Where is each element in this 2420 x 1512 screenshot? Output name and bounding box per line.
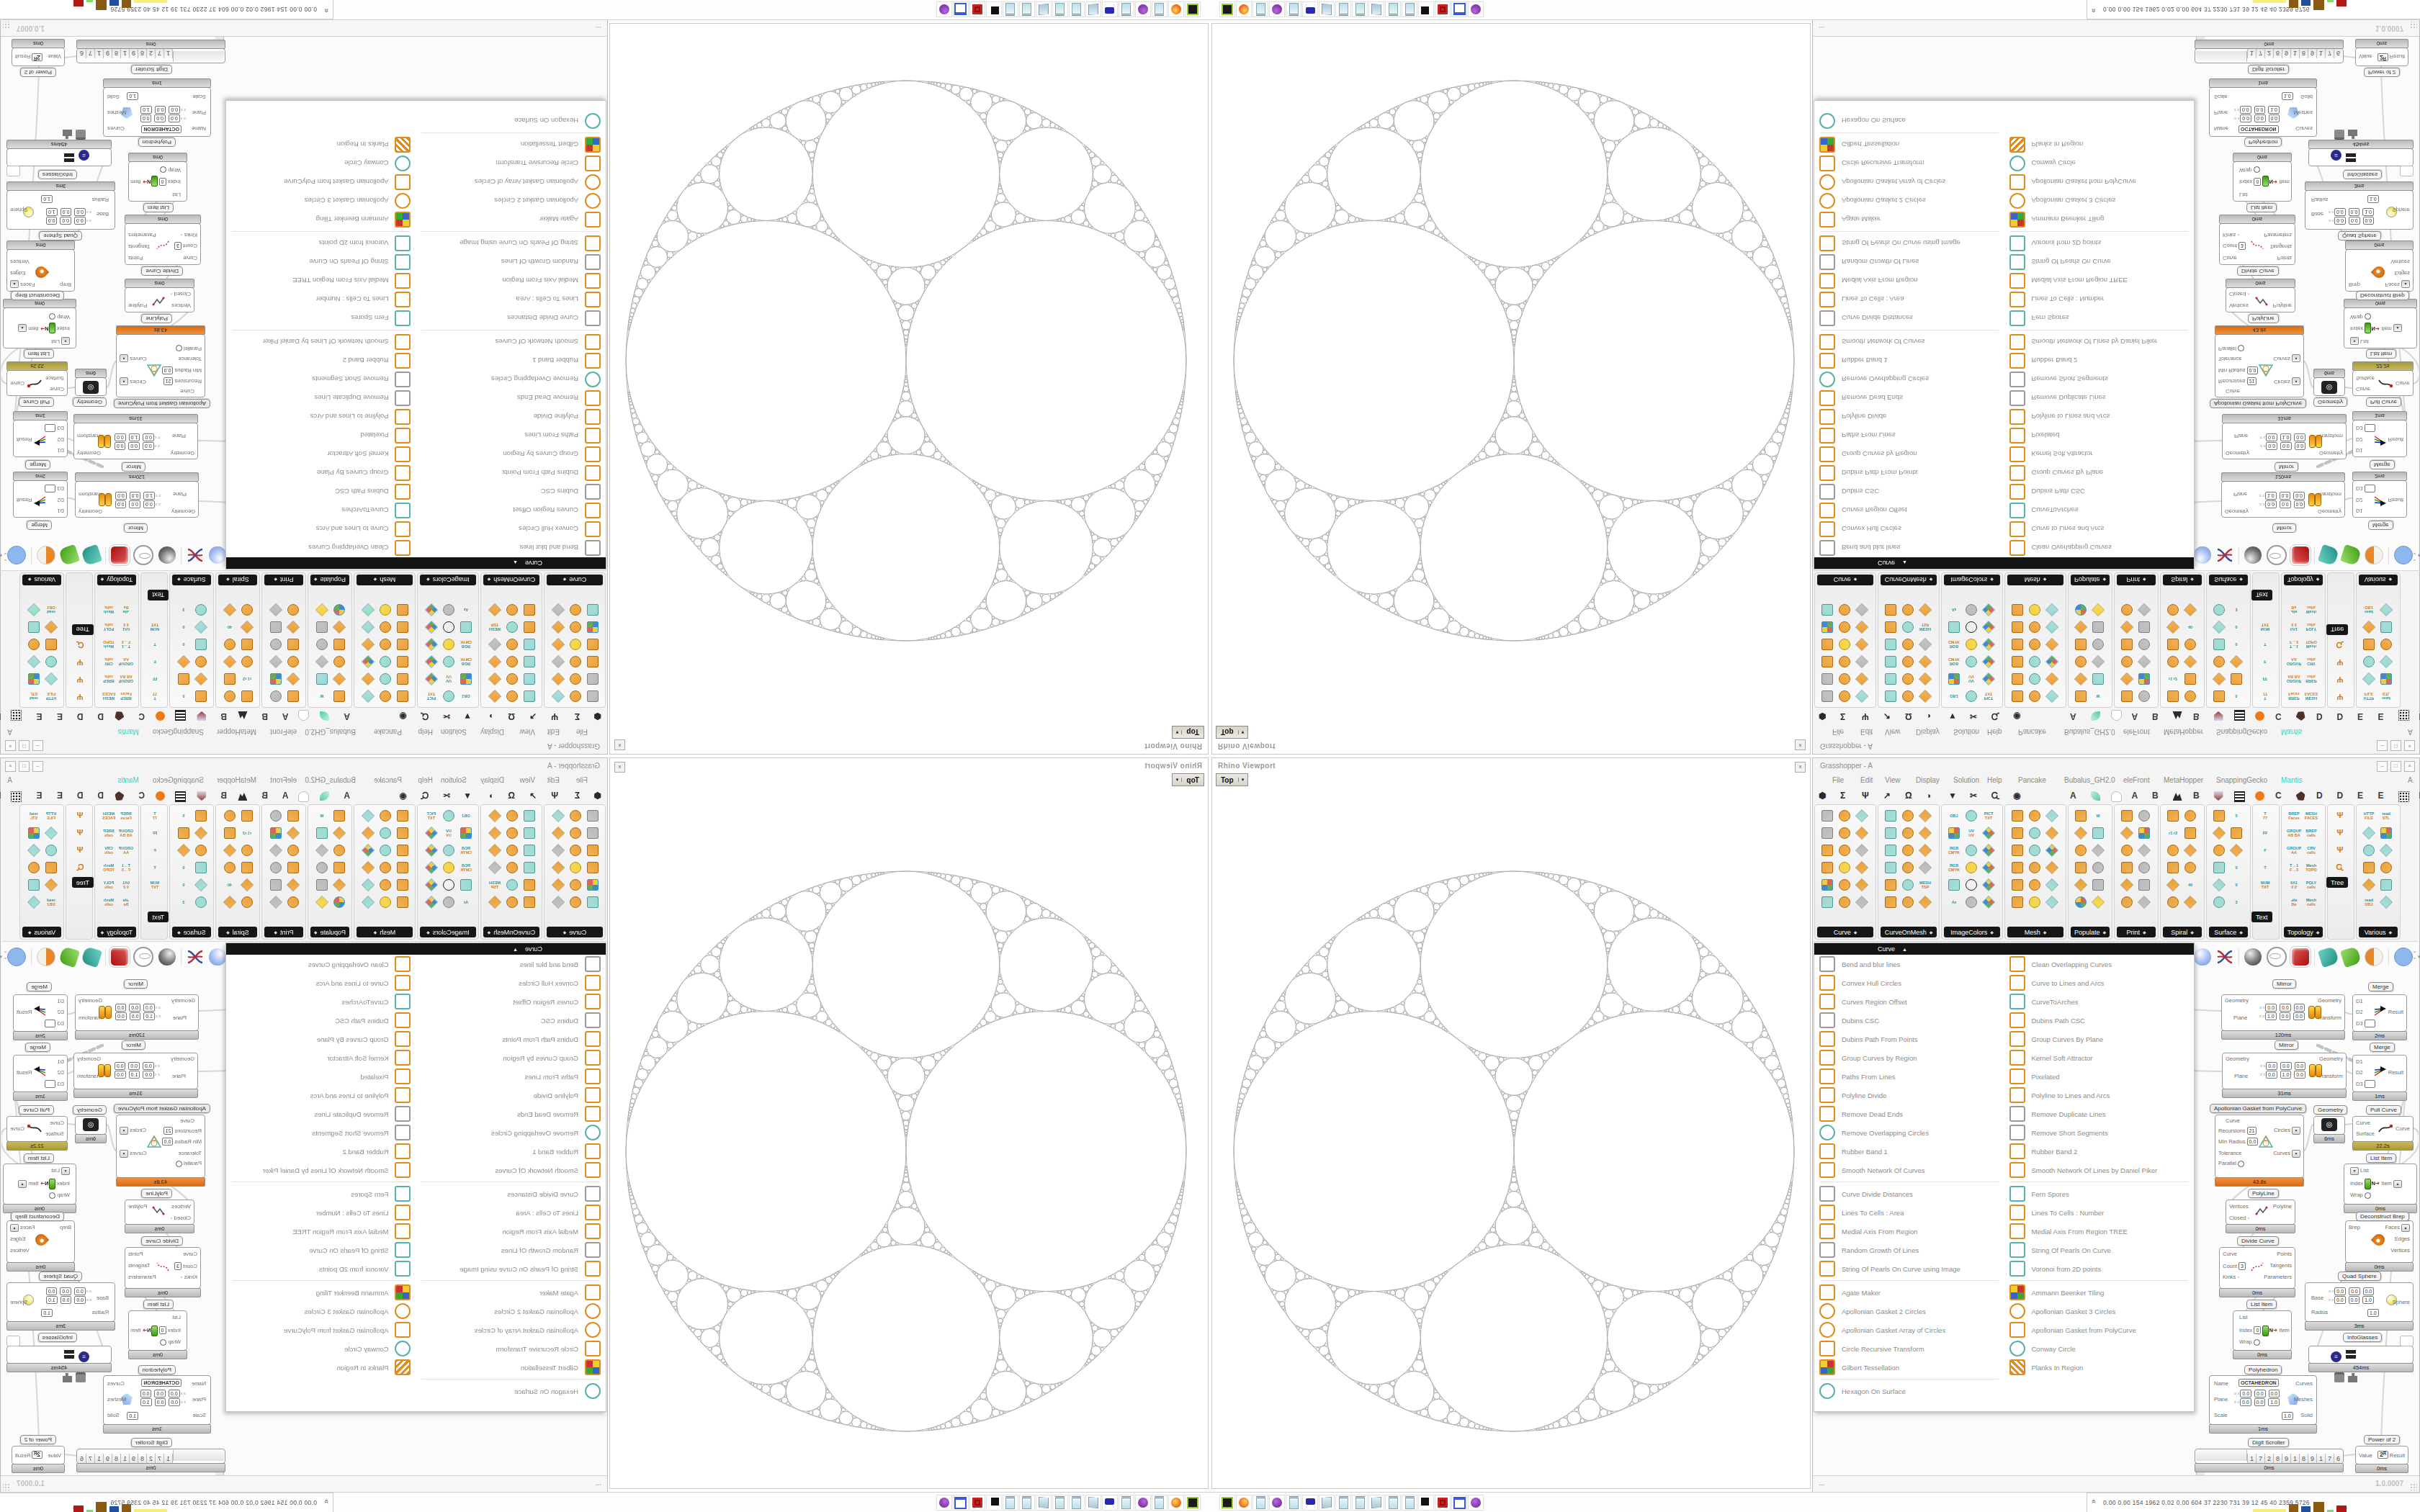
- tab-surface[interactable]: Surface◆: [2209, 927, 2248, 937]
- component-icon[interactable]: [505, 689, 519, 703]
- component-icon[interactable]: [1918, 860, 1932, 875]
- component-label[interactable]: Mirror: [2272, 523, 2296, 533]
- component-icon[interactable]: [2027, 826, 2042, 840]
- component-icon[interactable]: [2137, 603, 2151, 617]
- component-icon[interactable]: [1837, 637, 1852, 652]
- menu-item[interactable]: Hexagon On Surface: [416, 1382, 606, 1400]
- component-icon[interactable]: [2212, 689, 2226, 703]
- view-dropdown[interactable]: Top ▼: [1216, 773, 1248, 786]
- menu-header[interactable]: Curve ▲: [1814, 943, 2194, 955]
- component-icon[interactable]: [2074, 809, 2088, 823]
- component-label[interactable]: List Item: [2246, 203, 2277, 212]
- menu-item[interactable]: Voronoi from 2D points: [2004, 234, 2195, 253]
- category-tab-letter[interactable]: A: [2132, 791, 2138, 801]
- gh-component-gasket[interactable]: CurveRecursions 21Min Radius 0.0Toleranc…: [116, 334, 205, 397]
- component-icon[interactable]: [522, 843, 537, 858]
- component-icon[interactable]: Ψ: [2333, 654, 2347, 669]
- gh-component-scroller[interactable]: 172891891769: [2195, 1449, 2344, 1464]
- component-icon[interactable]: MESHFACES: [2304, 809, 2318, 823]
- mountain-icon[interactable]: [238, 791, 248, 801]
- category-tab-letter[interactable]: E: [2378, 791, 2384, 801]
- component-icon[interactable]: [2010, 672, 2025, 686]
- component-icon[interactable]: [269, 654, 283, 669]
- gh-component-qsphere[interactable]: Baseo x0.0·0.0·0.0z x0.0·0.0·1.0Radius1.…: [2305, 190, 2414, 230]
- component-icon[interactable]: [361, 809, 375, 823]
- component-icon[interactable]: [586, 654, 600, 669]
- component-icon[interactable]: [1883, 878, 1898, 892]
- component-label[interactable]: Merge: [2368, 982, 2393, 991]
- component-icon[interactable]: [361, 843, 375, 858]
- component-icon[interactable]: [1964, 878, 1978, 892]
- component-icon[interactable]: [27, 860, 41, 875]
- category-glyph-icon[interactable]: ✂: [443, 711, 450, 721]
- component-icon[interactable]: [2045, 620, 2059, 634]
- dot-orange-icon[interactable]: [156, 711, 166, 721]
- component-icon[interactable]: [1883, 860, 1898, 875]
- category-tab-letter[interactable]: B: [261, 791, 268, 801]
- component-icon[interactable]: [1901, 809, 1915, 823]
- component-label[interactable]: Geometry: [73, 1105, 107, 1115]
- component-icon[interactable]: readSTL: [27, 689, 41, 703]
- component-icon[interactable]: OBJ: [459, 809, 473, 823]
- menu-item[interactable]: Dubins Path From Points: [416, 1030, 606, 1048]
- taskbar-window-blue-icon[interactable]: [953, 1495, 969, 1511]
- component-icon[interactable]: [44, 654, 58, 669]
- component-icon[interactable]: [2166, 860, 2180, 875]
- component-icon[interactable]: [568, 895, 583, 909]
- component-icon[interactable]: [551, 826, 565, 840]
- component-icon[interactable]: [586, 843, 600, 858]
- gh-component-listA[interactable]: ▼ ListIndex N➜ Item ▲Wrap: [3, 307, 76, 348]
- component-icon[interactable]: [176, 826, 191, 840]
- chevron-up-icon[interactable]: »: [323, 1500, 331, 1504]
- component-icon[interactable]: RGBCMYK: [1947, 843, 1961, 858]
- tab-print[interactable]: Print◆: [2117, 927, 2156, 937]
- taskbar-rhino-icon[interactable]: [1418, 1, 1434, 17]
- component-icon[interactable]: [2229, 826, 2244, 840]
- component-icon[interactable]: [332, 860, 346, 875]
- gh-menu-metahopper[interactable]: MetaHopper: [217, 776, 256, 784]
- component-icon[interactable]: F: [2258, 654, 2272, 669]
- category-tab-letter[interactable]: E: [57, 711, 63, 721]
- component-icon[interactable]: [2074, 620, 2088, 634]
- component-icon[interactable]: [1820, 672, 1834, 686]
- component-label[interactable]: Digit Scroller: [2248, 1438, 2289, 1447]
- component-icon[interactable]: [1837, 620, 1852, 634]
- tab-mesh[interactable]: Mesh◆: [357, 927, 413, 937]
- component-icon[interactable]: [2010, 826, 2025, 840]
- component-label[interactable]: Apollonian Gasket from PolyCurve: [2210, 1104, 2306, 1113]
- gh-component-infoglasses[interactable]: ≡: [2308, 1346, 2414, 1364]
- taskbar-notepad-icon[interactable]: [1385, 1495, 1401, 1511]
- component-icon[interactable]: readSTL: [2379, 689, 2393, 703]
- component-icon[interactable]: r1 r2: [2166, 826, 2180, 840]
- menu-item[interactable]: Bend and blur lines: [1814, 539, 2004, 557]
- category-glyph-icon[interactable]: Ꮹ: [1991, 711, 1999, 721]
- close-button[interactable]: ×: [5, 740, 16, 751]
- component-icon[interactable]: [505, 895, 519, 909]
- chevron-down-icon[interactable]: ▼: [1238, 778, 1247, 782]
- component-icon[interactable]: [332, 843, 346, 858]
- component-icon[interactable]: [378, 603, 393, 617]
- gh-component-listA[interactable]: ▼ ListIndex N➜ Item ▲Wrap: [2344, 1164, 2417, 1205]
- category-glyph-icon[interactable]: ⬢: [1819, 791, 1826, 801]
- component-icon[interactable]: [1918, 843, 1932, 858]
- taskbar-notepad-icon[interactable]: [1402, 1, 1417, 17]
- taskbar-firefox-icon[interactable]: [1168, 1495, 1184, 1511]
- component-icon[interactable]: Ψ: [2333, 826, 2347, 840]
- component-icon[interactable]: MESHTSP: [1918, 878, 1932, 892]
- leaf-icon[interactable]: [2091, 791, 2100, 801]
- component-icon[interactable]: [395, 672, 410, 686]
- component-icon[interactable]: 0: [176, 637, 191, 652]
- menu-item[interactable]: Bend and blur lines: [416, 955, 606, 973]
- menu-item[interactable]: Medial Axis From Region: [1814, 271, 2004, 290]
- component-icon[interactable]: ⊿IeBe: [2287, 603, 2301, 617]
- menu-item[interactable]: Paths From Lines: [1814, 1067, 2004, 1086]
- component-icon[interactable]: [1820, 826, 1834, 840]
- component-icon[interactable]: [223, 895, 237, 909]
- component-icon[interactable]: 0Λ10 2: [119, 620, 133, 634]
- component-icon[interactable]: [269, 826, 283, 840]
- component-icon[interactable]: 0: [2229, 620, 2244, 634]
- component-icon[interactable]: 0: [176, 860, 191, 875]
- gh-component-listA[interactable]: ▼ ListIndex N➜ Item ▲Wrap: [2344, 307, 2417, 348]
- component-icon[interactable]: Ꮹ: [73, 860, 87, 875]
- component-icon[interactable]: [2137, 895, 2151, 909]
- component-icon[interactable]: [1820, 654, 1834, 669]
- component-icon[interactable]: 0: [2229, 878, 2244, 892]
- component-icon[interactable]: [361, 654, 375, 669]
- dotgrid-icon[interactable]: [11, 710, 22, 721]
- category-glyph-icon[interactable]: Ω: [508, 791, 515, 801]
- gh-component-divide[interactable]: CurveCount 3Kinks ◦PointsTangentsParamet…: [125, 223, 201, 265]
- menu-item[interactable]: Apollonian Gasket 3 Circles: [226, 1302, 416, 1320]
- component-label[interactable]: Mirror: [122, 462, 145, 472]
- component-icon[interactable]: [332, 878, 346, 892]
- component-icon[interactable]: [176, 672, 191, 686]
- component-icon[interactable]: Ꮹ: [2333, 637, 2347, 652]
- category-glyph-icon[interactable]: ↗: [529, 791, 537, 801]
- category-tab-letter[interactable]: E: [0, 711, 1, 721]
- gh-component-infoglasses[interactable]: ≡: [2308, 148, 2414, 166]
- component-icon[interactable]: [1901, 878, 1915, 892]
- component-icon[interactable]: [551, 860, 565, 875]
- dotgrid-icon[interactable]: [2398, 791, 2409, 802]
- component-icon[interactable]: [2229, 654, 2244, 669]
- gh-menu-document[interactable]: A: [7, 728, 12, 736]
- menu-item[interactable]: Curve to Lines and Arcs: [2004, 973, 2195, 992]
- tab-topology[interactable]: Topology◆: [2284, 927, 2323, 937]
- component-icon[interactable]: [223, 860, 237, 875]
- component-icon[interactable]: CRVcells: [102, 843, 116, 858]
- component-icon[interactable]: [269, 620, 283, 634]
- component-icon[interactable]: T77: [2258, 809, 2272, 823]
- component-icon[interactable]: [424, 878, 439, 892]
- menu-item[interactable]: Apollonian Gasket from PolyCurve: [226, 1320, 416, 1339]
- component-icon[interactable]: [2045, 843, 2059, 858]
- taskbar-rhino-icon[interactable]: [986, 1, 1002, 17]
- component-icon[interactable]: [269, 637, 283, 652]
- shield-icon[interactable]: [2214, 711, 2223, 721]
- component-label[interactable]: Mirror: [2272, 979, 2296, 989]
- component-icon[interactable]: [27, 826, 41, 840]
- component-icon[interactable]: [395, 895, 410, 909]
- component-icon[interactable]: [240, 620, 254, 634]
- leaf-icon[interactable]: [321, 711, 330, 721]
- component-icon[interactable]: POLYcells: [2304, 878, 2318, 892]
- category-glyph-icon[interactable]: Σ: [575, 791, 580, 801]
- component-icon[interactable]: POLYcells: [102, 620, 116, 634]
- menu-item[interactable]: Apollonian Gasket from PolyCurve: [2004, 173, 2195, 192]
- component-icon[interactable]: [44, 637, 58, 652]
- menu-item[interactable]: Curve Divide Distances: [416, 309, 606, 328]
- menu-item[interactable]: Pixelated: [226, 1067, 416, 1086]
- tab-curve[interactable]: Curve◆: [1817, 575, 1873, 585]
- close-icon[interactable]: x: [1795, 739, 1806, 750]
- tab-surface[interactable]: Surface◆: [2209, 575, 2248, 585]
- gh-component-scroller[interactable]: 172891891769: [76, 48, 225, 63]
- component-icon[interactable]: [315, 843, 329, 858]
- component-icon[interactable]: [240, 895, 254, 909]
- component-icon[interactable]: [395, 809, 410, 823]
- minimize-button[interactable]: –: [2377, 740, 2388, 751]
- taskbar-window-blue-icon[interactable]: [1451, 1495, 1467, 1511]
- menu-item[interactable]: Pixelated: [2004, 1067, 2195, 1086]
- component-icon[interactable]: [1855, 603, 1869, 617]
- close-icon[interactable]: x: [614, 762, 625, 773]
- gh-component-mirror2[interactable]: GeometryPlaneo x0.0·0.0·0.0z x0.0·1.0·0.…: [2222, 1053, 2347, 1089]
- category-tab-letter[interactable]: A: [2132, 711, 2138, 721]
- component-icon[interactable]: T→1F→3: [2287, 860, 2301, 875]
- component-icon[interactable]: [1820, 620, 1834, 634]
- category-tab-letter[interactable]: D: [97, 791, 104, 801]
- component-label[interactable]: Merge: [25, 460, 50, 469]
- component-icon[interactable]: [223, 689, 237, 703]
- menu-item[interactable]: Fern Spores: [226, 309, 416, 328]
- component-icon[interactable]: OBJ: [1947, 689, 1961, 703]
- menu-item[interactable]: Dubins Path CSC: [226, 482, 416, 501]
- component-icon[interactable]: [2010, 654, 2025, 669]
- gh-component-infoglasses[interactable]: ≡: [6, 148, 112, 166]
- menu-item[interactable]: Curve Divide Distances: [416, 1184, 606, 1203]
- tab-tree[interactable]: Tree: [2326, 877, 2348, 888]
- component-icon[interactable]: [2120, 637, 2134, 652]
- gh-menu-bubalus_gh2.0[interactable]: Bubalus_GH2.0: [2064, 728, 2115, 736]
- component-icon[interactable]: [1883, 826, 1898, 840]
- component-icon[interactable]: r1 r2: [2166, 672, 2180, 686]
- component-icon[interactable]: 40: [2183, 878, 2197, 892]
- component-icon[interactable]: 0Λ10 2: [2287, 878, 2301, 892]
- component-icon[interactable]: [361, 860, 375, 875]
- view-dropdown[interactable]: Top ▼: [1172, 773, 1204, 786]
- taskbar-floppy64-icon[interactable]: [1102, 1, 1118, 17]
- component-icon[interactable]: HTTPFILE: [2362, 689, 2376, 703]
- component-icon[interactable]: [2379, 860, 2393, 875]
- component-icon[interactable]: UVUV: [1964, 826, 1978, 840]
- component-icon[interactable]: [1918, 895, 1932, 909]
- component-icon[interactable]: [1918, 637, 1932, 652]
- component-icon[interactable]: 0: [176, 620, 191, 634]
- menu-item[interactable]: Medial Axis From Region TREE: [2004, 1222, 2195, 1241]
- resize-grip[interactable]: [2410, 1483, 2417, 1490]
- component-icon[interactable]: [2045, 654, 2059, 669]
- gh-menu-view[interactable]: View: [520, 728, 536, 736]
- component-icon[interactable]: [286, 826, 300, 840]
- component-icon[interactable]: [2137, 689, 2151, 703]
- apollonian-gasket-canvas[interactable]: [611, 25, 1208, 754]
- component-icon[interactable]: [361, 620, 375, 634]
- leaf-icon[interactable]: [321, 791, 330, 801]
- component-icon[interactable]: T: [2258, 637, 2272, 652]
- menu-item[interactable]: Group Curves By Plane: [226, 1030, 416, 1048]
- component-icon[interactable]: [1837, 860, 1852, 875]
- menu-item[interactable]: Rubber Band 2: [226, 1142, 416, 1161]
- component-icon[interactable]: [1855, 843, 1869, 858]
- component-icon[interactable]: [44, 843, 58, 858]
- category-glyph-icon[interactable]: ⬢: [594, 711, 601, 721]
- component-label[interactable]: Quad Sphere: [2338, 231, 2381, 240]
- taskbar-red-gear-icon[interactable]: [969, 1, 985, 17]
- menu-item[interactable]: Remove Short Segments: [2004, 370, 2195, 389]
- component-icon[interactable]: [2166, 895, 2180, 909]
- category-tab-letter[interactable]: D: [2316, 711, 2323, 721]
- component-icon[interactable]: MeshTOPO: [102, 637, 116, 652]
- menu-item[interactable]: Remove Overlapping Circles: [416, 1123, 606, 1142]
- component-icon[interactable]: [2362, 637, 2376, 652]
- component-icon[interactable]: [1855, 878, 1869, 892]
- menu-item[interactable]: Remove Overlapping Circles: [416, 370, 606, 389]
- menu-item[interactable]: Conway Circle: [2004, 154, 2195, 173]
- component-icon[interactable]: [1918, 689, 1932, 703]
- taskbar-app-green-icon[interactable]: [1219, 1, 1235, 17]
- component-icon[interactable]: [488, 826, 502, 840]
- tab-surface[interactable]: Surface◆: [172, 927, 211, 937]
- component-icon[interactable]: [1981, 620, 1996, 634]
- category-glyph-icon[interactable]: Ψ: [551, 791, 558, 801]
- menu-item[interactable]: Voronoi from 2D points: [226, 1259, 416, 1278]
- menu-item[interactable]: String Of Pearls On Curve using Image: [1814, 234, 2004, 253]
- tab-curveonmesh[interactable]: CurveOnMesh◆: [1881, 927, 1937, 937]
- close-icon[interactable]: x: [1795, 762, 1806, 773]
- component-icon[interactable]: GROUPAA: [119, 843, 133, 858]
- component-icon[interactable]: [361, 878, 375, 892]
- component-icon[interactable]: [2074, 689, 2088, 703]
- menu-item[interactable]: Lines To Cells : Number: [226, 290, 416, 309]
- tab-text[interactable]: Text: [2251, 912, 2272, 922]
- component-icon[interactable]: [286, 620, 300, 634]
- component-icon[interactable]: [1964, 860, 1978, 875]
- component-icon[interactable]: [1883, 637, 1898, 652]
- category-glyph-icon[interactable]: ▼: [463, 711, 472, 721]
- bird-icon[interactable]: [2296, 791, 2305, 801]
- category-glyph-icon[interactable]: ◉: [400, 791, 407, 801]
- category-tab-letter[interactable]: E: [2357, 711, 2363, 721]
- bird-icon[interactable]: [115, 711, 125, 721]
- gh-component-mirror2[interactable]: GeometryPlaneo x0.0·0.0·0.0z x0.0·1.0·0.…: [73, 1053, 198, 1089]
- gh-component-polyline[interactable]: VerticesClosed ◦Polyline: [125, 287, 194, 312]
- menu-item[interactable]: Lines To Cells : Number: [2004, 1203, 2195, 1222]
- component-icon[interactable]: BREPFaces: [119, 809, 133, 823]
- tab-spiral[interactable]: Spiral◆: [2163, 927, 2202, 937]
- menu-item[interactable]: Remove Dead Ends: [1814, 389, 2004, 408]
- component-label[interactable]: Digit Scroller: [131, 65, 172, 74]
- component-icon[interactable]: BREPFaces: [119, 689, 133, 703]
- menu-item[interactable]: Ammann Beenker Tiling: [2004, 210, 2195, 229]
- menu-item[interactable]: Clean Overlapping Curves: [226, 955, 416, 973]
- menu-item[interactable]: Pixelated: [226, 426, 416, 445]
- menu-item[interactable]: Apollonian Gasket from PolyCurve: [226, 173, 416, 192]
- minimize-button[interactable]: –: [32, 740, 43, 751]
- component-icon[interactable]: [459, 878, 473, 892]
- component-icon[interactable]: [1901, 843, 1915, 858]
- taskbar-notepad-icon[interactable]: [1252, 1495, 1268, 1511]
- menu-item[interactable]: Remove Dead Ends: [416, 1104, 606, 1123]
- component-label[interactable]: Polyhedron: [138, 138, 176, 147]
- component-icon[interactable]: 40: [223, 878, 237, 892]
- component-icon[interactable]: GROUPAA: [119, 654, 133, 669]
- gh-component-mirror1[interactable]: GeometryPlaneo x0.0·0.0·0.0z x1.0·0.0·0.…: [2221, 481, 2345, 518]
- component-icon[interactable]: [378, 895, 393, 909]
- taskbar-notepad-icon[interactable]: [1385, 1, 1401, 17]
- menu-item[interactable]: CurveToArches: [2004, 992, 2195, 1011]
- category-tab-letter[interactable]: E: [36, 711, 42, 721]
- gh-component-listB[interactable]: ListIndex 0 N➜ ItemWrap: [2233, 161, 2292, 202]
- component-icon[interactable]: [1855, 809, 1869, 823]
- component-icon[interactable]: [2166, 654, 2180, 669]
- component-icon[interactable]: RGBCMYK: [459, 654, 473, 669]
- component-icon[interactable]: Ψ: [2333, 809, 2347, 823]
- component-icon[interactable]: [1918, 809, 1932, 823]
- gh-component-mirror1[interactable]: GeometryPlaneo x0.0·0.0·0.0z x1.0·0.0·0.…: [75, 994, 199, 1031]
- component-icon[interactable]: [2091, 603, 2105, 617]
- component-icon[interactable]: r1 r2: [240, 672, 254, 686]
- gh-component-qsphere[interactable]: Baseo x0.0·0.0·0.0z x0.0·0.0·1.0Radius1.…: [2305, 1282, 2414, 1322]
- component-icon[interactable]: GROUPAB BA: [119, 672, 133, 686]
- component-icon[interactable]: [240, 843, 254, 858]
- component-icon[interactable]: [2091, 620, 2105, 634]
- taskbar-purple-ball-icon[interactable]: [1135, 1495, 1151, 1511]
- ghost-icon[interactable]: [2111, 791, 2122, 802]
- component-icon[interactable]: [1820, 603, 1834, 617]
- component-icon[interactable]: [2027, 843, 2042, 858]
- chevron-up-icon[interactable]: »: [323, 9, 331, 13]
- component-icon[interactable]: [2212, 809, 2226, 823]
- component-icon[interactable]: [2010, 878, 2025, 892]
- component-icon[interactable]: [2212, 654, 2226, 669]
- gh-component-gasket[interactable]: CurveRecursions 21Min Radius 0.0Toleranc…: [116, 1115, 205, 1178]
- component-icon[interactable]: [2010, 809, 2025, 823]
- component-icon[interactable]: [424, 603, 439, 617]
- menu-item[interactable]: Conway Circle: [226, 154, 416, 173]
- gh-menu-document[interactable]: A: [2408, 728, 2413, 736]
- component-icon[interactable]: [44, 860, 58, 875]
- component-icon[interactable]: [223, 603, 237, 617]
- component-icon[interactable]: [240, 603, 254, 617]
- gh-menu-elefront[interactable]: eleFront: [2123, 776, 2150, 784]
- component-icon[interactable]: [488, 637, 502, 652]
- gh-menu-help[interactable]: Help: [418, 776, 433, 784]
- component-icon[interactable]: [223, 809, 237, 823]
- component-icon[interactable]: [2091, 826, 2105, 840]
- gh-component-mirror1[interactable]: GeometryPlaneo x0.0·0.0·0.0z x1.0·0.0·0.…: [2221, 994, 2345, 1031]
- component-icon[interactable]: [1964, 654, 1978, 669]
- menu-item[interactable]: String Of Pearls On Curve using Image: [416, 234, 606, 253]
- gh-menu-pancake[interactable]: Pancake: [374, 728, 402, 736]
- component-icon[interactable]: [551, 878, 565, 892]
- gh-menu-help[interactable]: Help: [1987, 776, 2002, 784]
- component-icon[interactable]: RGBCMYK: [459, 860, 473, 875]
